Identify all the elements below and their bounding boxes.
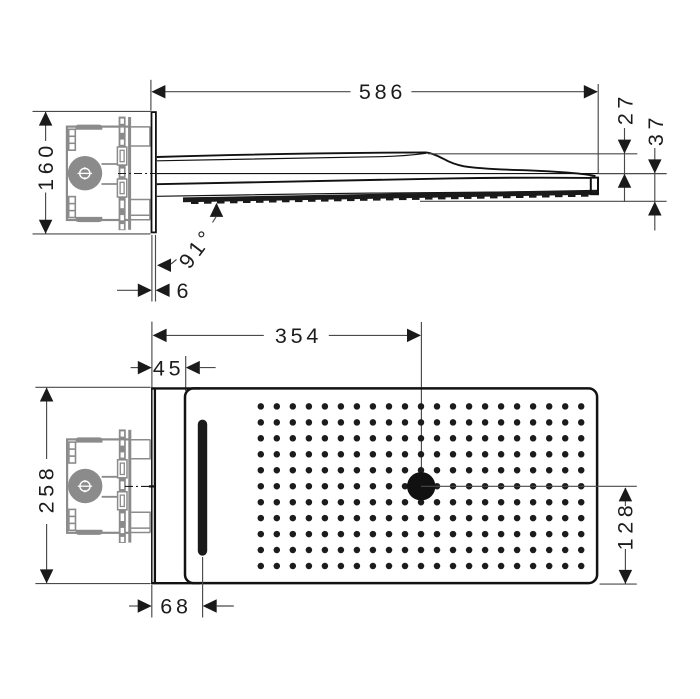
svg-text:160: 160: [34, 141, 58, 191]
svg-text:586: 586: [359, 80, 406, 104]
svg-text:68: 68: [160, 595, 192, 619]
svg-text:128: 128: [614, 501, 638, 551]
svg-text:37: 37: [644, 113, 668, 146]
svg-text:27: 27: [613, 92, 637, 125]
svg-text:354: 354: [275, 324, 322, 348]
svg-text:45: 45: [153, 356, 185, 380]
svg-text:258: 258: [35, 464, 59, 514]
svg-text:6: 6: [177, 279, 193, 303]
